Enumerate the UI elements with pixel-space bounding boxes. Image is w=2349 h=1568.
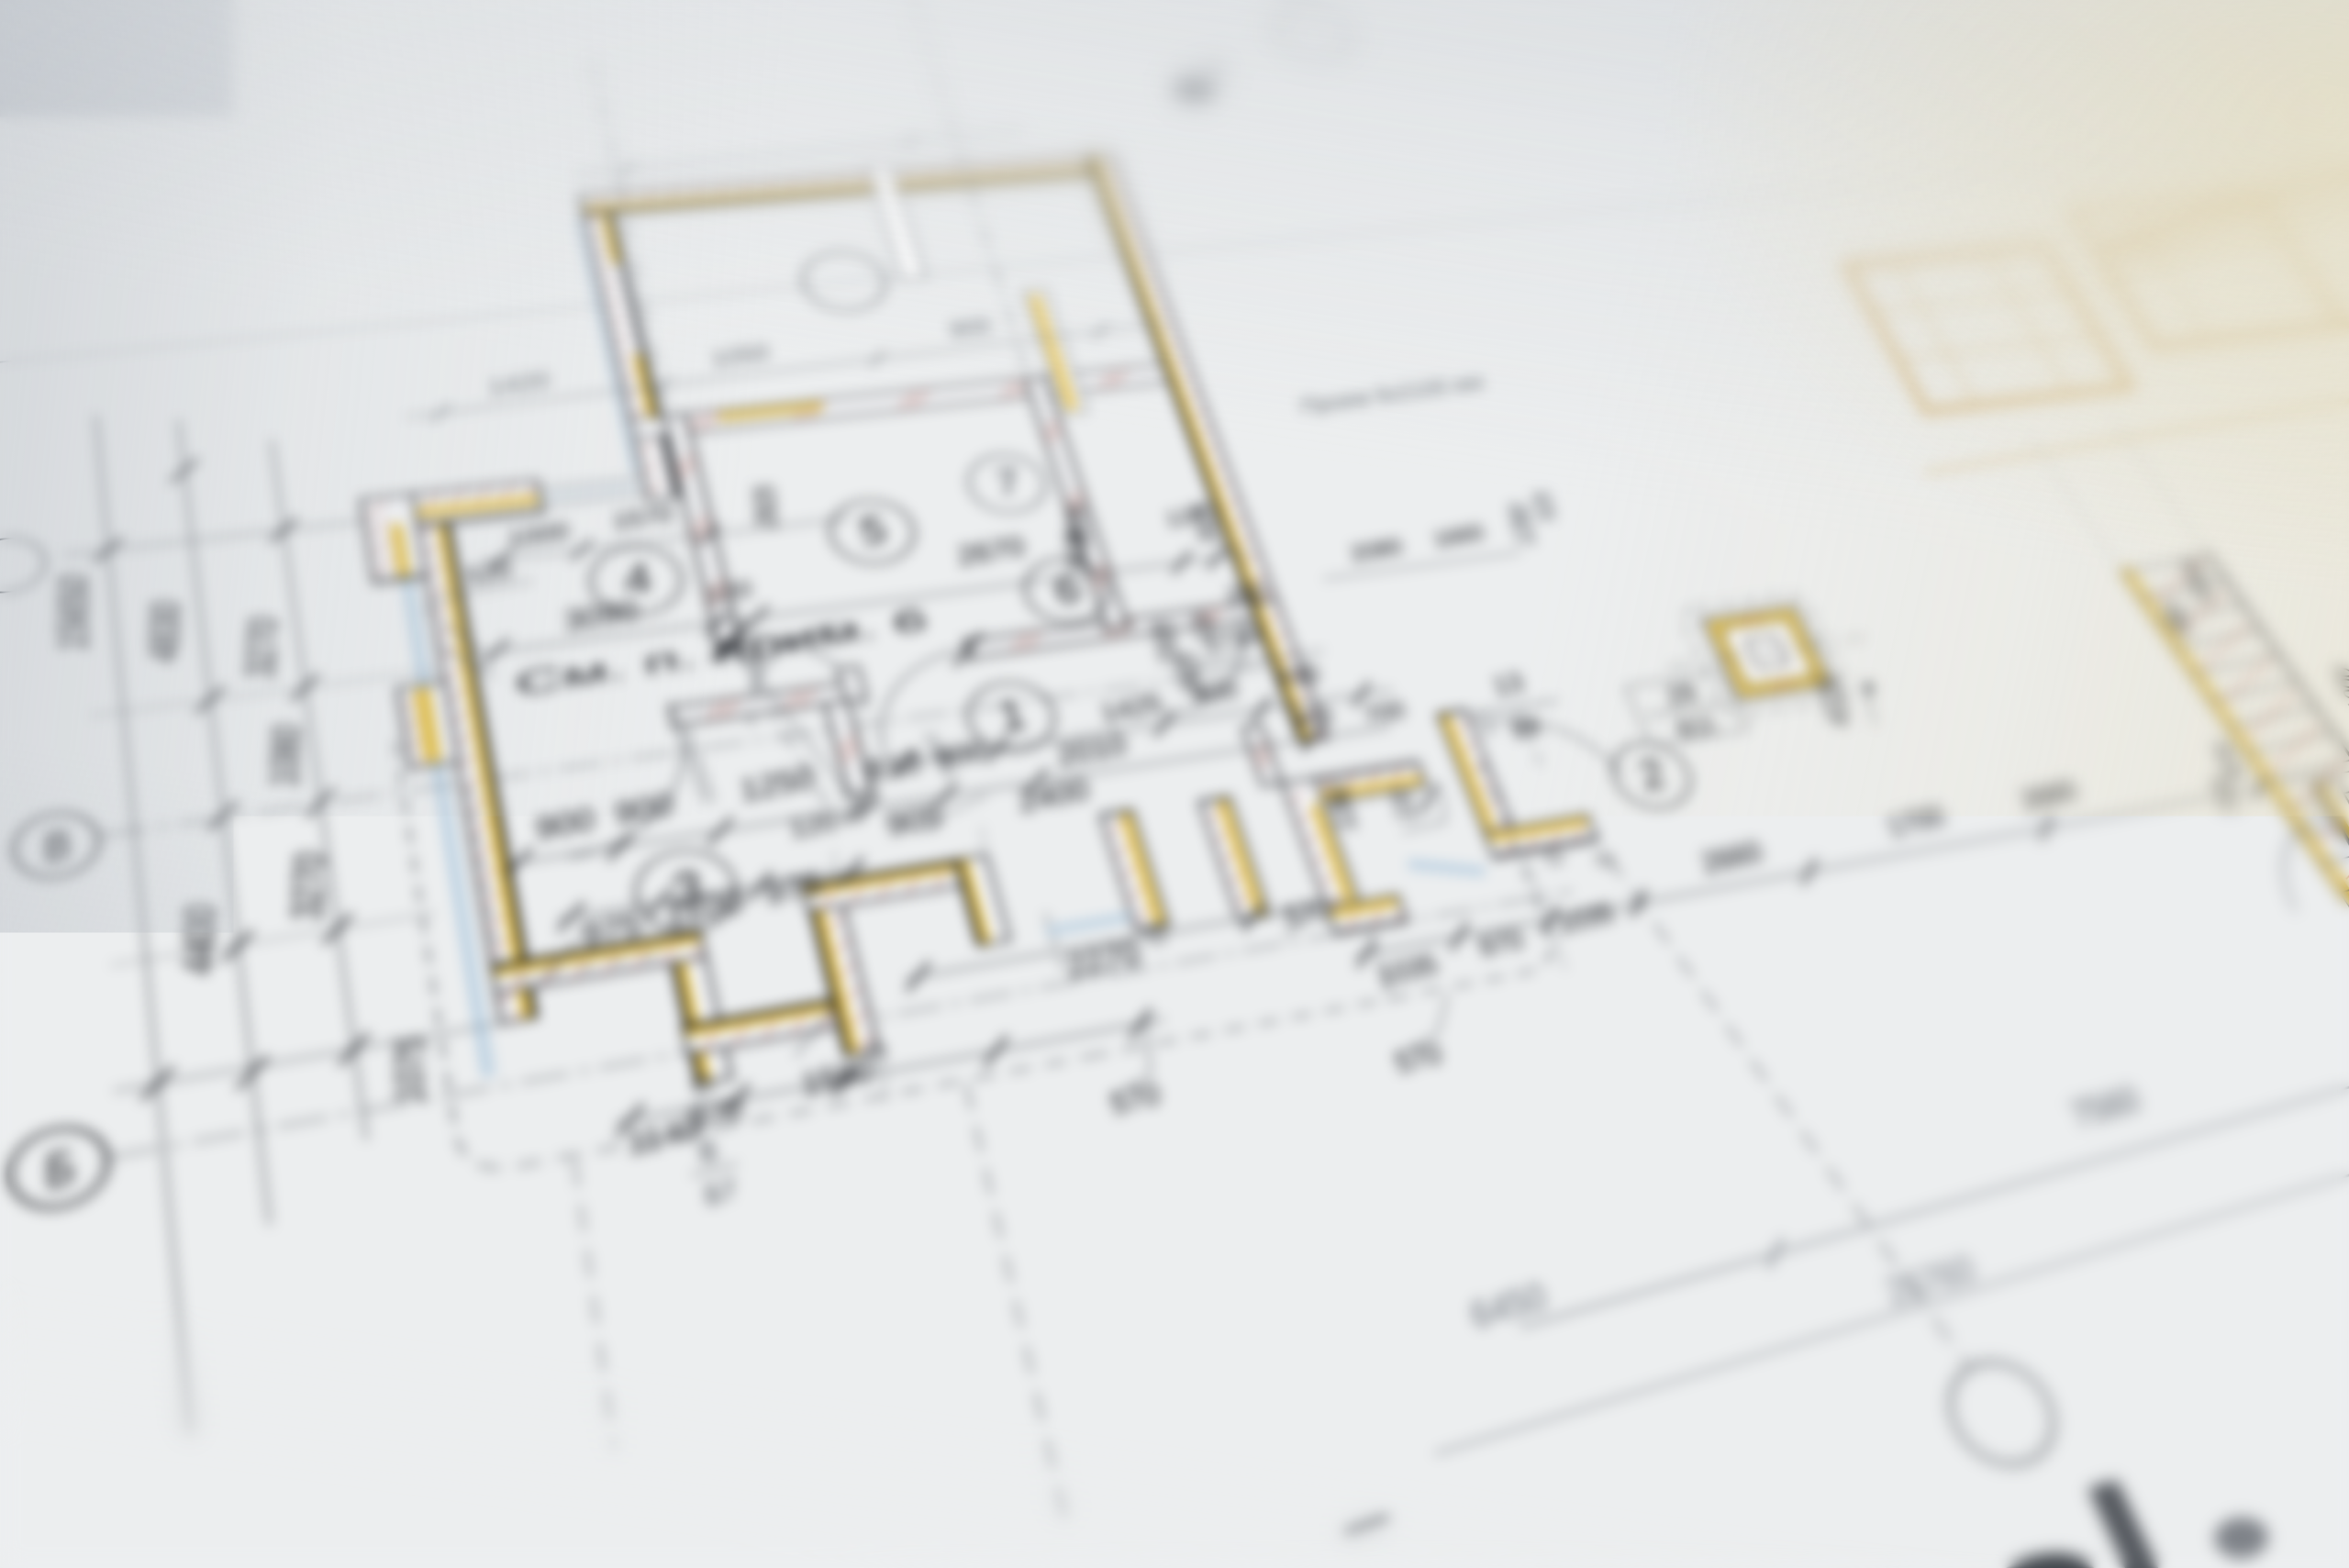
svg-text:3270: 3270 xyxy=(284,851,336,921)
svg-text:2625: 2625 xyxy=(1172,652,1208,695)
svg-text:25760: 25760 xyxy=(1881,1248,1981,1315)
svg-text:2825: 2825 xyxy=(750,484,784,528)
svg-text:570: 570 xyxy=(1281,893,1333,932)
svg-text:6: 6 xyxy=(1051,566,1085,613)
svg-text:1700: 1700 xyxy=(1882,800,1950,843)
svg-text:900: 900 xyxy=(534,801,596,847)
svg-text:1570: 1570 xyxy=(611,501,674,535)
svg-text:29: 29 xyxy=(1663,678,1700,711)
svg-text:7: 7 xyxy=(993,462,1023,504)
svg-text:1000: 1000 xyxy=(507,517,570,552)
svg-text:2270: 2270 xyxy=(1063,933,1143,984)
svg-text:4: 4 xyxy=(621,555,653,605)
svg-text:900: 900 xyxy=(613,786,674,832)
svg-text:4830: 4830 xyxy=(140,601,190,663)
svg-text:1: 1 xyxy=(995,690,1030,740)
svg-text:715: 715 xyxy=(2205,776,2249,815)
svg-text:2660: 2660 xyxy=(2016,774,2082,817)
svg-text:700: 700 xyxy=(1361,695,1408,729)
svg-text:2536: 2536 xyxy=(1061,503,1095,545)
svg-text:970: 970 xyxy=(687,1091,744,1138)
svg-text:2080: 2080 xyxy=(1347,534,1405,566)
svg-text:2010: 2010 xyxy=(1053,727,1129,773)
svg-text:1425: 1425 xyxy=(1098,689,1165,728)
svg-text:120: 120 xyxy=(788,806,840,843)
svg-text:13: 13 xyxy=(1489,668,1527,701)
svg-text:2400: 2400 xyxy=(1015,772,1092,818)
svg-text:2660: 2660 xyxy=(1697,835,1766,880)
svg-text:1420: 1420 xyxy=(487,367,551,399)
svg-text:900: 900 xyxy=(934,736,987,774)
svg-text:3: 3 xyxy=(669,861,705,920)
svg-text:1250: 1250 xyxy=(738,760,817,807)
svg-text:15650: 15650 xyxy=(50,574,98,651)
svg-text:Б7: Б7 xyxy=(704,1174,738,1213)
svg-text:В11: В11 xyxy=(1674,710,1720,743)
svg-text:3270: 3270 xyxy=(237,616,287,679)
svg-text:7560: 7560 xyxy=(2065,1079,2146,1136)
svg-text:1000: 1000 xyxy=(2327,665,2349,713)
svg-text:6450: 6450 xyxy=(1466,1275,1552,1339)
svg-text:6: 6 xyxy=(697,1132,718,1170)
svg-text:2: 2 xyxy=(1634,750,1671,798)
svg-text:Проем 9х2100 мм: Проем 9х2100 мм xyxy=(1297,371,1486,417)
svg-text:2670: 2670 xyxy=(954,531,1027,572)
svg-text:900: 900 xyxy=(947,314,993,342)
svg-text:5: 5 xyxy=(857,507,889,554)
svg-text:В6: В6 xyxy=(1508,712,1544,744)
svg-text:Б: Б xyxy=(45,1138,75,1200)
svg-text:1660: 1660 xyxy=(1430,520,1486,552)
svg-text:1050: 1050 xyxy=(709,339,771,371)
svg-text:520: 520 xyxy=(465,556,513,589)
svg-text:1075: 1075 xyxy=(387,1036,433,1104)
svg-text:4120: 4120 xyxy=(1809,673,1857,728)
svg-text:4400: 4400 xyxy=(174,905,227,975)
svg-text:1080: 1080 xyxy=(260,724,309,788)
svg-text:1035: 1035 xyxy=(1374,948,1441,992)
svg-text:120: 120 xyxy=(1386,787,1421,821)
svg-text:1560: 1560 xyxy=(799,1052,875,1103)
svg-text:970: 970 xyxy=(1475,923,1526,962)
svg-text:1035: 1035 xyxy=(1553,897,1618,940)
svg-text:В: В xyxy=(44,821,71,872)
